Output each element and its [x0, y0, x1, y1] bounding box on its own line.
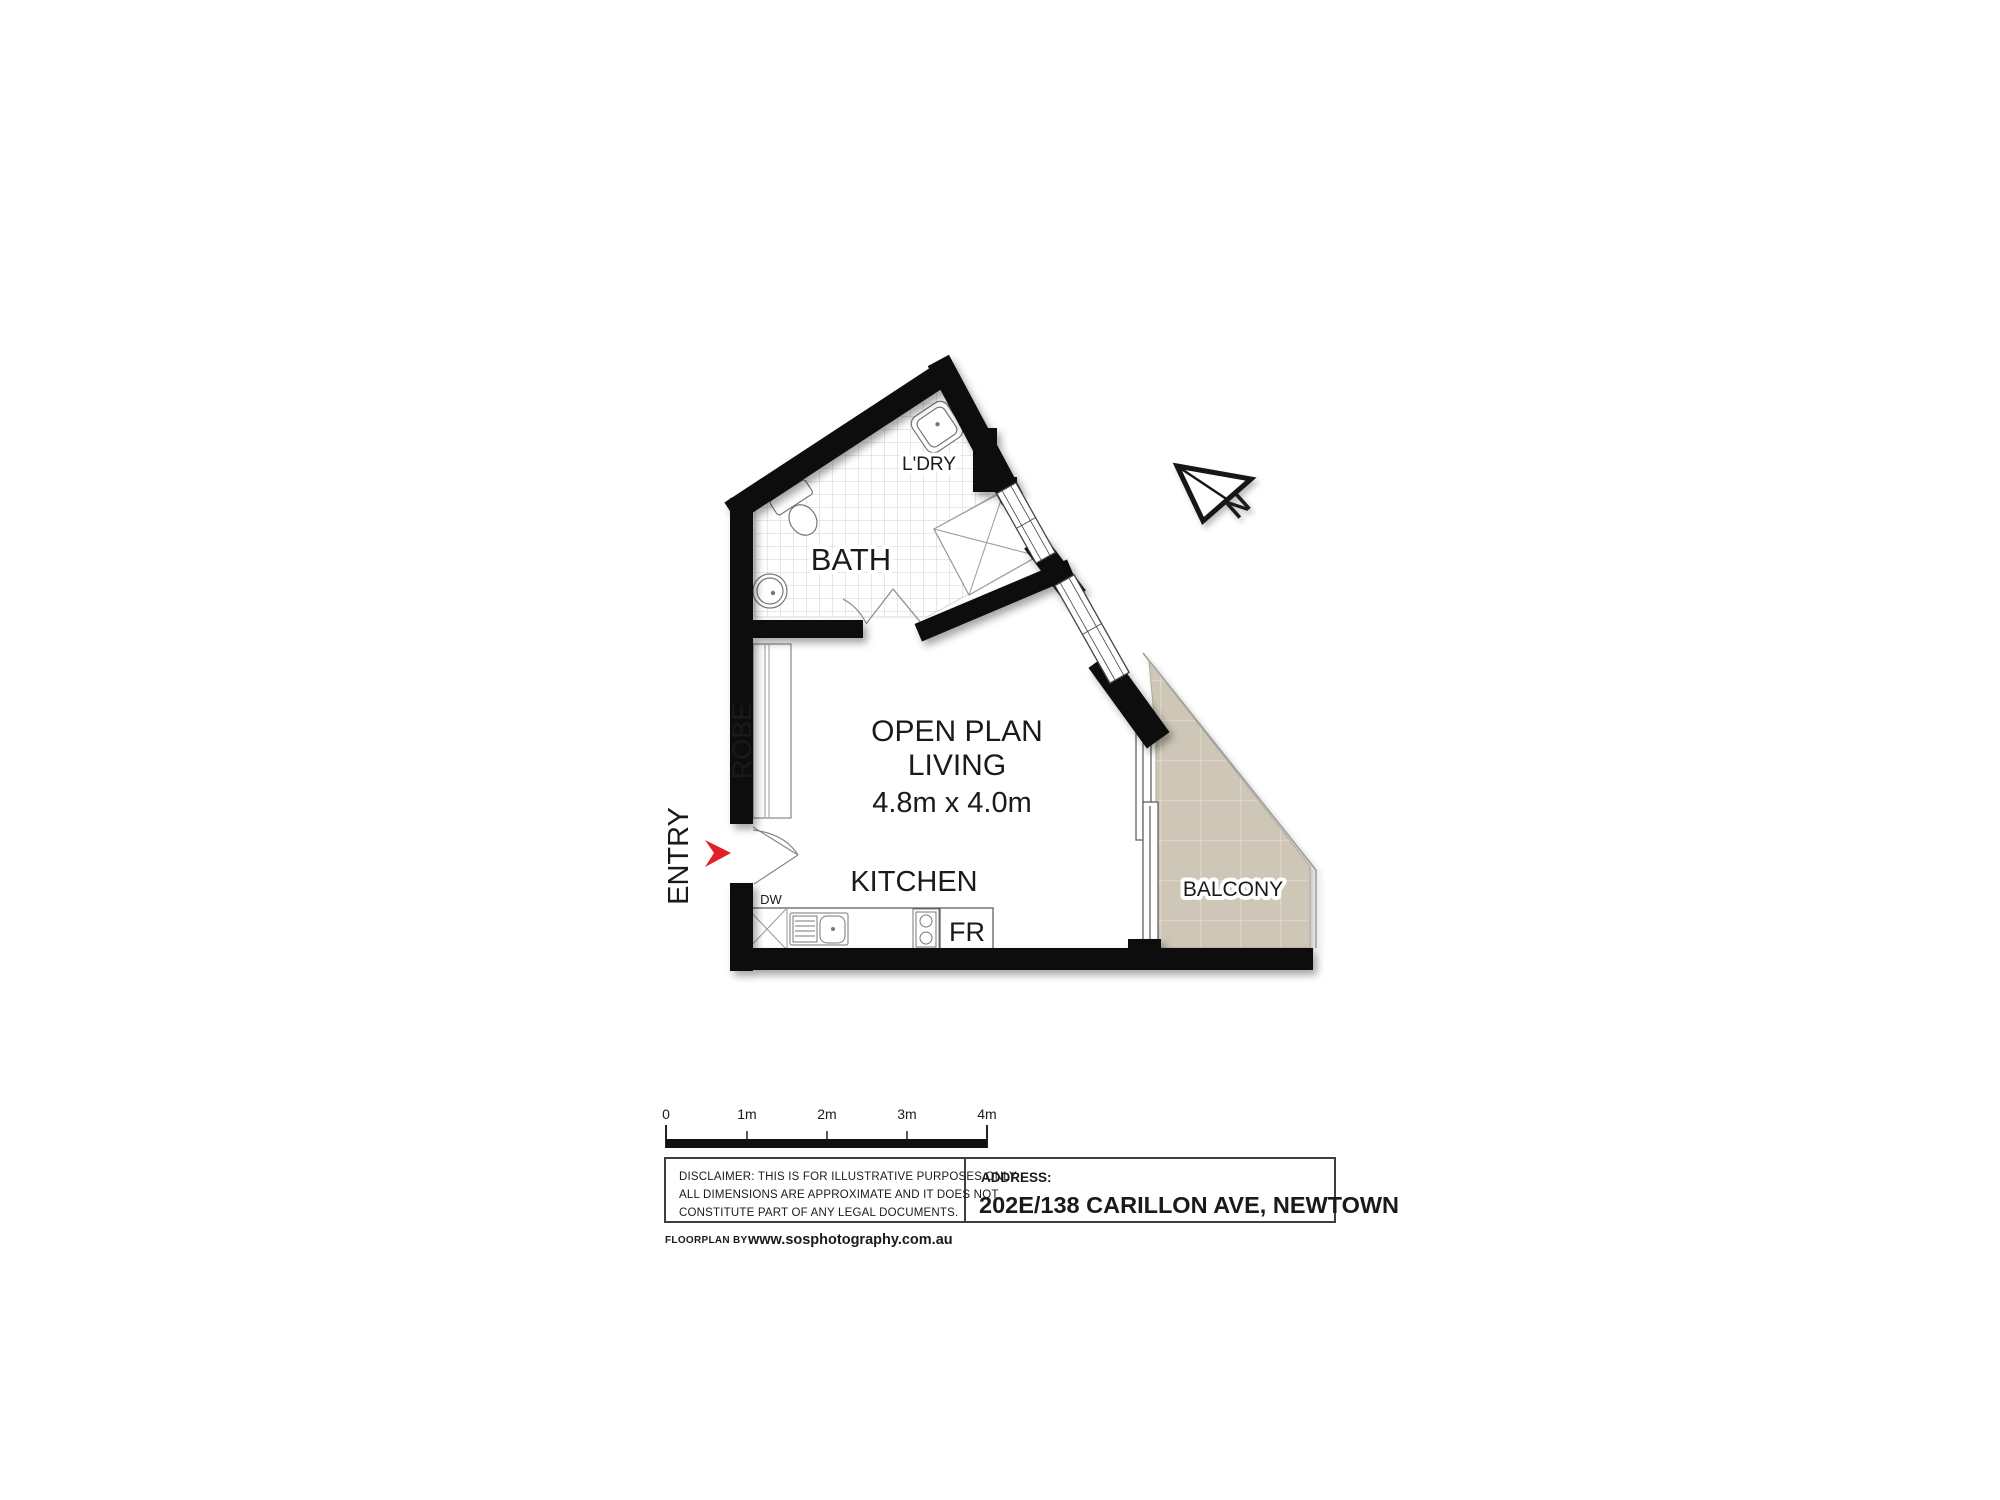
stove-cooktop — [913, 909, 939, 950]
label-living-line1: OPEN PLAN — [871, 715, 1043, 748]
label-kitchen: KITCHEN — [850, 866, 977, 898]
basin — [753, 574, 787, 608]
label-robe: ROBE — [727, 703, 757, 780]
disclaimer-line2: ALL DIMENSIONS ARE APPROXIMATE AND IT DO… — [679, 1189, 999, 1201]
wall-bath-south — [745, 620, 863, 638]
balcony-sliding-doors — [1136, 726, 1158, 944]
floorplan-image: N BATH L'DRY ROBE ENTRY OPEN PLAN LIVING… — [0, 0, 2000, 1500]
wall-bottom — [730, 948, 1313, 970]
label-living-dims: 4.8m x 4.0m — [872, 787, 1032, 819]
north-compass: N — [1177, 466, 1256, 524]
address-label: ADDRESS: — [981, 1170, 1052, 1185]
label-bath: BATH — [811, 542, 891, 577]
disclaimer-line1: DISCLAIMER: THIS IS FOR ILLUSTRATIVE PUR… — [679, 1171, 1019, 1183]
scale-bar-rule — [666, 1139, 987, 1148]
wall-balcony-stub — [1128, 939, 1161, 955]
scale-tick-label-4: 4m — [977, 1106, 996, 1122]
balcony-tiles — [1149, 661, 1310, 948]
label-laundry: L'DRY — [902, 454, 956, 475]
disclaimer-line3: CONSTITUTE PART OF ANY LEGAL DOCUMENTS. — [679, 1207, 958, 1219]
kitchen-sink — [790, 913, 848, 945]
address-value: 202E/138 CARILLON AVE, NEWTOWN — [979, 1192, 1399, 1218]
floorplan-page: N BATH L'DRY ROBE ENTRY OPEN PLAN LIVING… — [0, 0, 2000, 1500]
scale-tick-label-0: 0 — [662, 1106, 670, 1122]
scale-tick-label-3: 3m — [897, 1106, 916, 1122]
robe-closet — [753, 644, 791, 818]
label-living-line2: LIVING — [908, 749, 1006, 782]
label-balcony: BALCONY — [1183, 878, 1283, 901]
scale-tick-label-2: 2m — [817, 1106, 836, 1122]
credit-prefix: FLOORPLAN BY — [665, 1235, 748, 1246]
scale-bar: 0 1m 2m 3m 4m — [662, 1106, 997, 1148]
entry-door — [753, 827, 798, 884]
label-entry: ENTRY — [663, 807, 695, 905]
label-dishwasher: DW — [760, 892, 782, 907]
label-fridge: FR — [949, 917, 985, 947]
balcony-area — [1143, 653, 1316, 948]
credit-site: www.sosphotography.com.au — [747, 1232, 953, 1248]
scale-tick-label-1: 1m — [737, 1106, 756, 1122]
footer: DISCLAIMER: THIS IS FOR ILLUSTRATIVE PUR… — [665, 1158, 1399, 1248]
entry-arrow — [705, 840, 731, 867]
